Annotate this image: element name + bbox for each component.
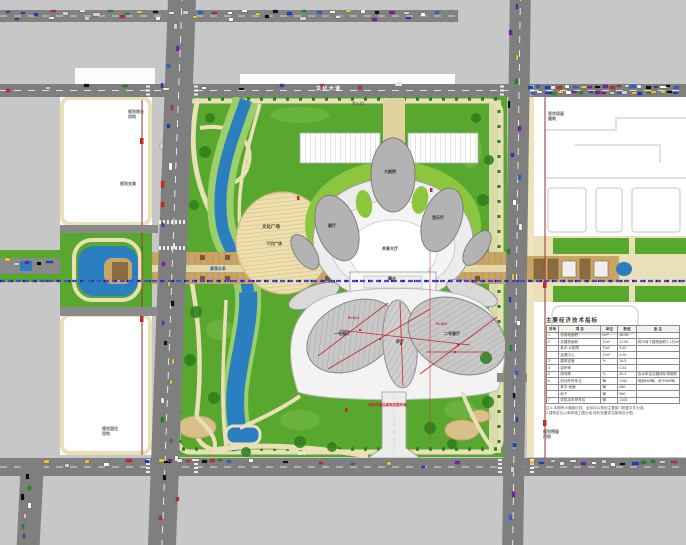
indicator-note-line: 2.建筑定位以单体施工图为准,绿化布置详见景观设计图。 bbox=[546, 411, 682, 416]
indicator-table-row: 7非机动车停车位辆2100 bbox=[547, 397, 680, 404]
master-plan-canvas[interactable]: 文 化 大 道规划商业 用地规划支路规划居住 用地现状保留 建筑规划预留 用地景… bbox=[0, 0, 686, 545]
indicator-table: 序号项 目单位数值备 注1总用地面积hm²38.562总建筑面积万m²12.80… bbox=[546, 325, 680, 404]
indicator-table-title: 主要经济技术指标 bbox=[546, 316, 682, 324]
indicator-table-panel: 主要经济技术指标 序号项 目单位数值备 注1总用地面积hm²38.562总建筑面… bbox=[546, 316, 682, 416]
site-plan-drawing bbox=[0, 0, 686, 545]
indicator-table-notes: 注:1.本图所示道路红线、坐标均以规划主管部门批复文件为准。2.建筑定位以单体施… bbox=[546, 406, 682, 416]
